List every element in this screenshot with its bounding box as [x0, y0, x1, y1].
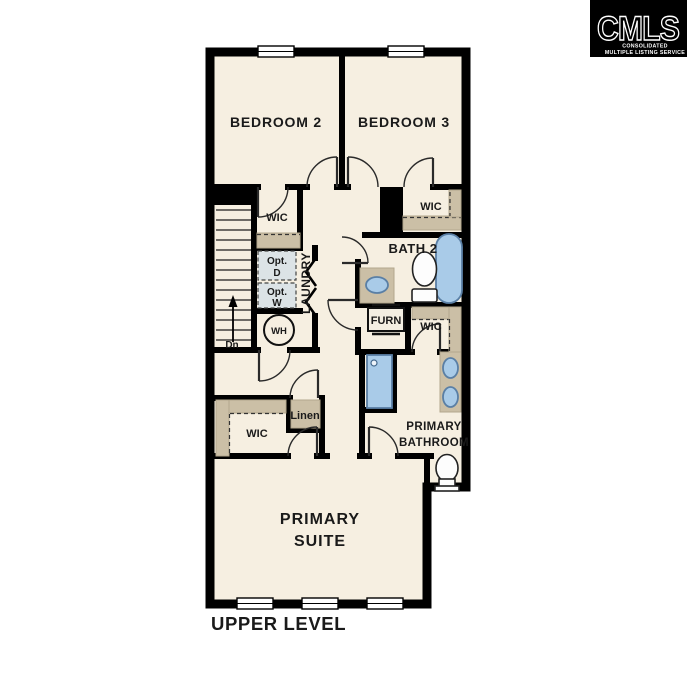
- toilet-icon: [413, 252, 437, 286]
- bath2-label: BATH 2: [389, 241, 438, 256]
- logo-brand-text: CMLS: [597, 10, 679, 48]
- wic-bedroom3-label: WIC: [420, 201, 441, 213]
- primary-suite-label-line1: PRIMARY: [280, 511, 360, 528]
- wic-primary-label: WIC: [246, 428, 267, 440]
- primary-suite-label-line2: SUITE: [294, 533, 346, 550]
- opt-dryer-label-line1: Opt.: [267, 256, 287, 267]
- shelf: [449, 307, 461, 352]
- floor-plan-image: Dn: [0, 0, 687, 687]
- sink-icon: [366, 277, 388, 293]
- sink-icon: [443, 358, 458, 378]
- wic-hall-label: WIC: [420, 321, 441, 333]
- logo-tagline-line1: CONSOLIDATED: [622, 44, 668, 50]
- water-heater-label: WH: [271, 326, 287, 337]
- logo-tagline-line2: MULTIPLE LISTING SERVICE: [605, 50, 685, 56]
- shelf: [449, 190, 461, 217]
- wic-bedroom2-label: WIC: [266, 212, 287, 224]
- shelf: [257, 233, 300, 248]
- bedroom3-label: BEDROOM 3: [358, 114, 450, 130]
- toilet-base-plate: [435, 486, 459, 491]
- furnace-label: FURN: [371, 315, 402, 327]
- cmls-logo: CMLS CONSOLIDATED MULTIPLE LISTING SERVI…: [590, 0, 687, 57]
- toilet-tank: [412, 289, 437, 302]
- hall-wall-column: [380, 187, 403, 235]
- primary-bathroom-label-line1: PRIMARY: [406, 421, 461, 433]
- opt-washer-label-line1: Opt.: [267, 287, 287, 298]
- sink-icon: [443, 387, 458, 407]
- opt-dryer-label-line2: D: [273, 268, 280, 279]
- level-title: UPPER LEVEL: [211, 613, 346, 634]
- stairs-down-label: Dn: [225, 340, 238, 351]
- stair-head-wall: [211, 187, 254, 205]
- bedroom2-label: BEDROOM 2: [230, 114, 322, 130]
- shelf: [216, 400, 229, 456]
- linen-label: Linen: [290, 410, 320, 422]
- shower-drain-icon: [371, 360, 377, 366]
- toilet-icon: [436, 455, 458, 482]
- opt-washer-label-line2: W: [272, 298, 282, 309]
- laundry-label: LAUNDRY: [299, 252, 313, 314]
- shelf: [403, 216, 461, 230]
- primary-bathroom-label-line2: BATHROOM: [399, 437, 469, 449]
- bathtub-icon: [436, 234, 462, 303]
